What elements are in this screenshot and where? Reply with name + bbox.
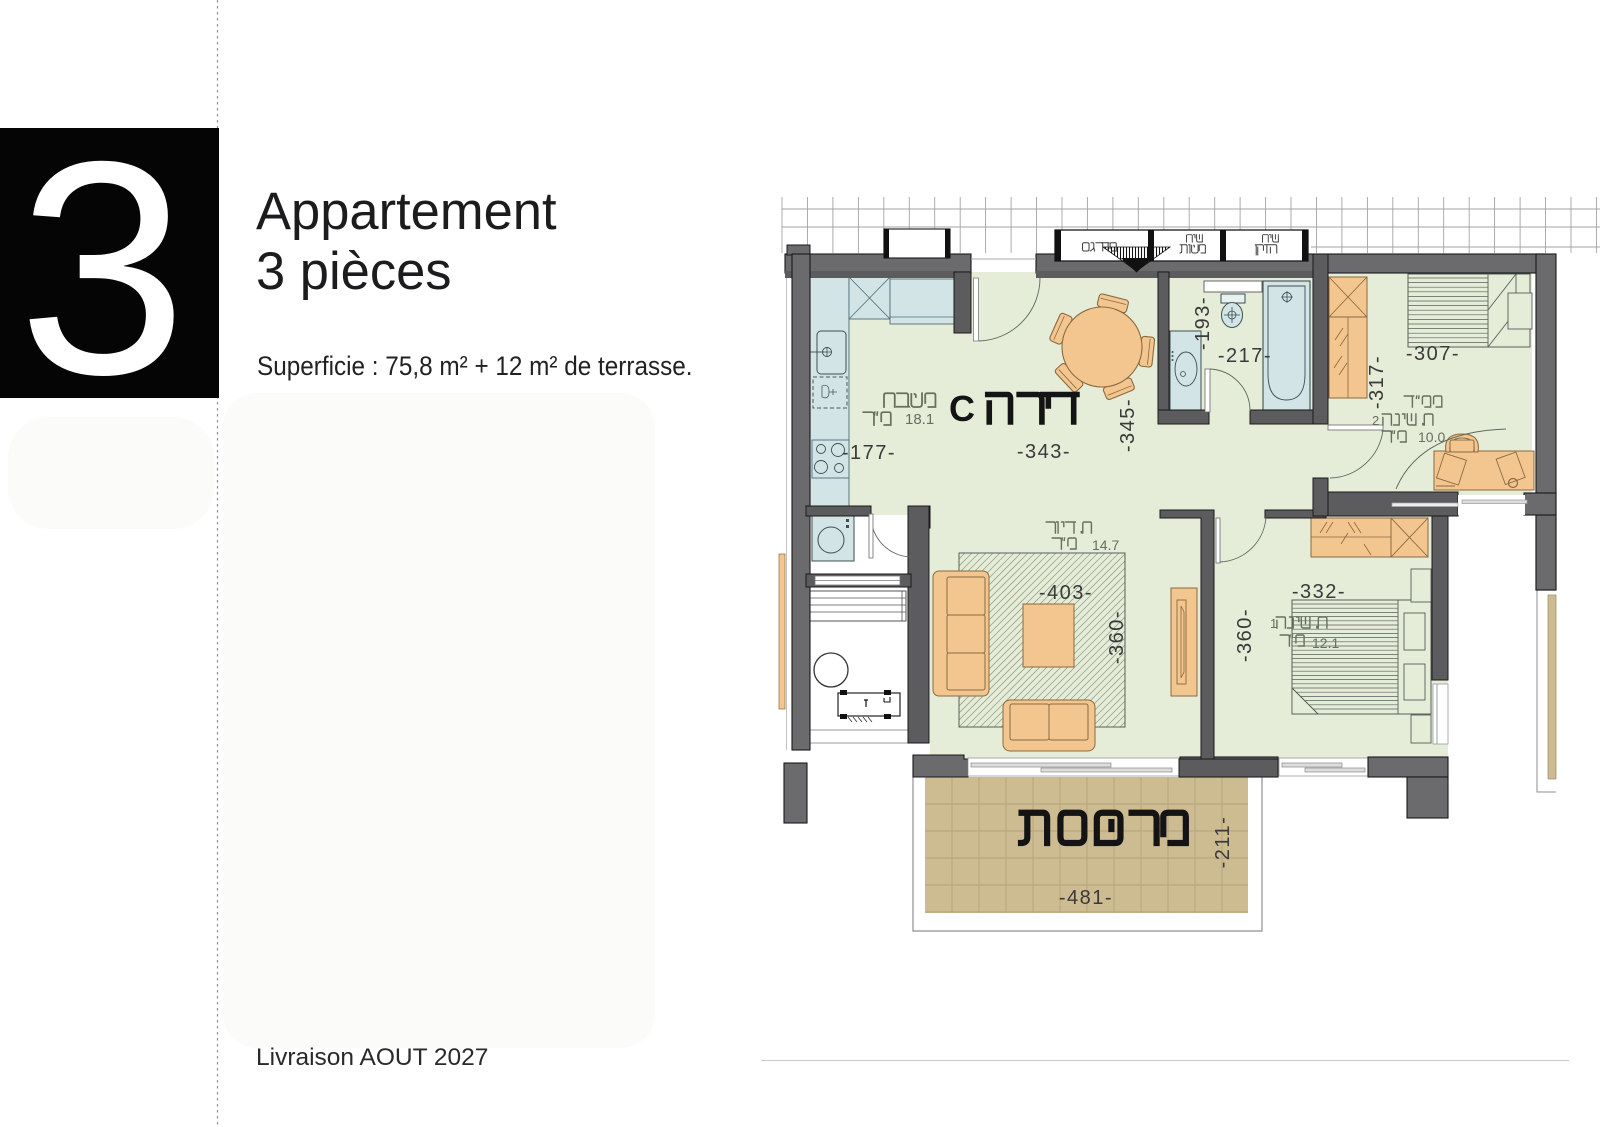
svg-text:-317-: -317- (1366, 355, 1388, 409)
svg-text:2: 2 (1372, 413, 1379, 428)
svg-text:-360-: -360- (1106, 610, 1128, 664)
svg-text:-345-: -345- (1117, 398, 1139, 452)
svg-text:-360-: -360- (1234, 608, 1256, 662)
svg-text:-217-: -217- (1218, 345, 1272, 367)
svg-text:-177-: -177- (842, 442, 896, 464)
svg-text:-481-: -481- (1059, 887, 1113, 909)
svg-text:-332-: -332- (1292, 581, 1346, 603)
svg-text:-193-: -193- (1192, 296, 1214, 350)
svg-text:C: C (949, 388, 975, 429)
svg-text:1: 1 (1270, 616, 1277, 631)
svg-text:-211-: -211- (1212, 816, 1234, 869)
svg-text:14.7: 14.7 (1092, 537, 1119, 553)
svg-text:-343-: -343- (1017, 441, 1071, 463)
svg-text:10.0: 10.0 (1418, 429, 1445, 445)
svg-text:-403-: -403- (1039, 582, 1093, 604)
svg-text:-307-: -307- (1406, 343, 1460, 365)
svg-text:18.1: 18.1 (905, 411, 934, 428)
svg-text:12.1: 12.1 (1312, 635, 1339, 651)
